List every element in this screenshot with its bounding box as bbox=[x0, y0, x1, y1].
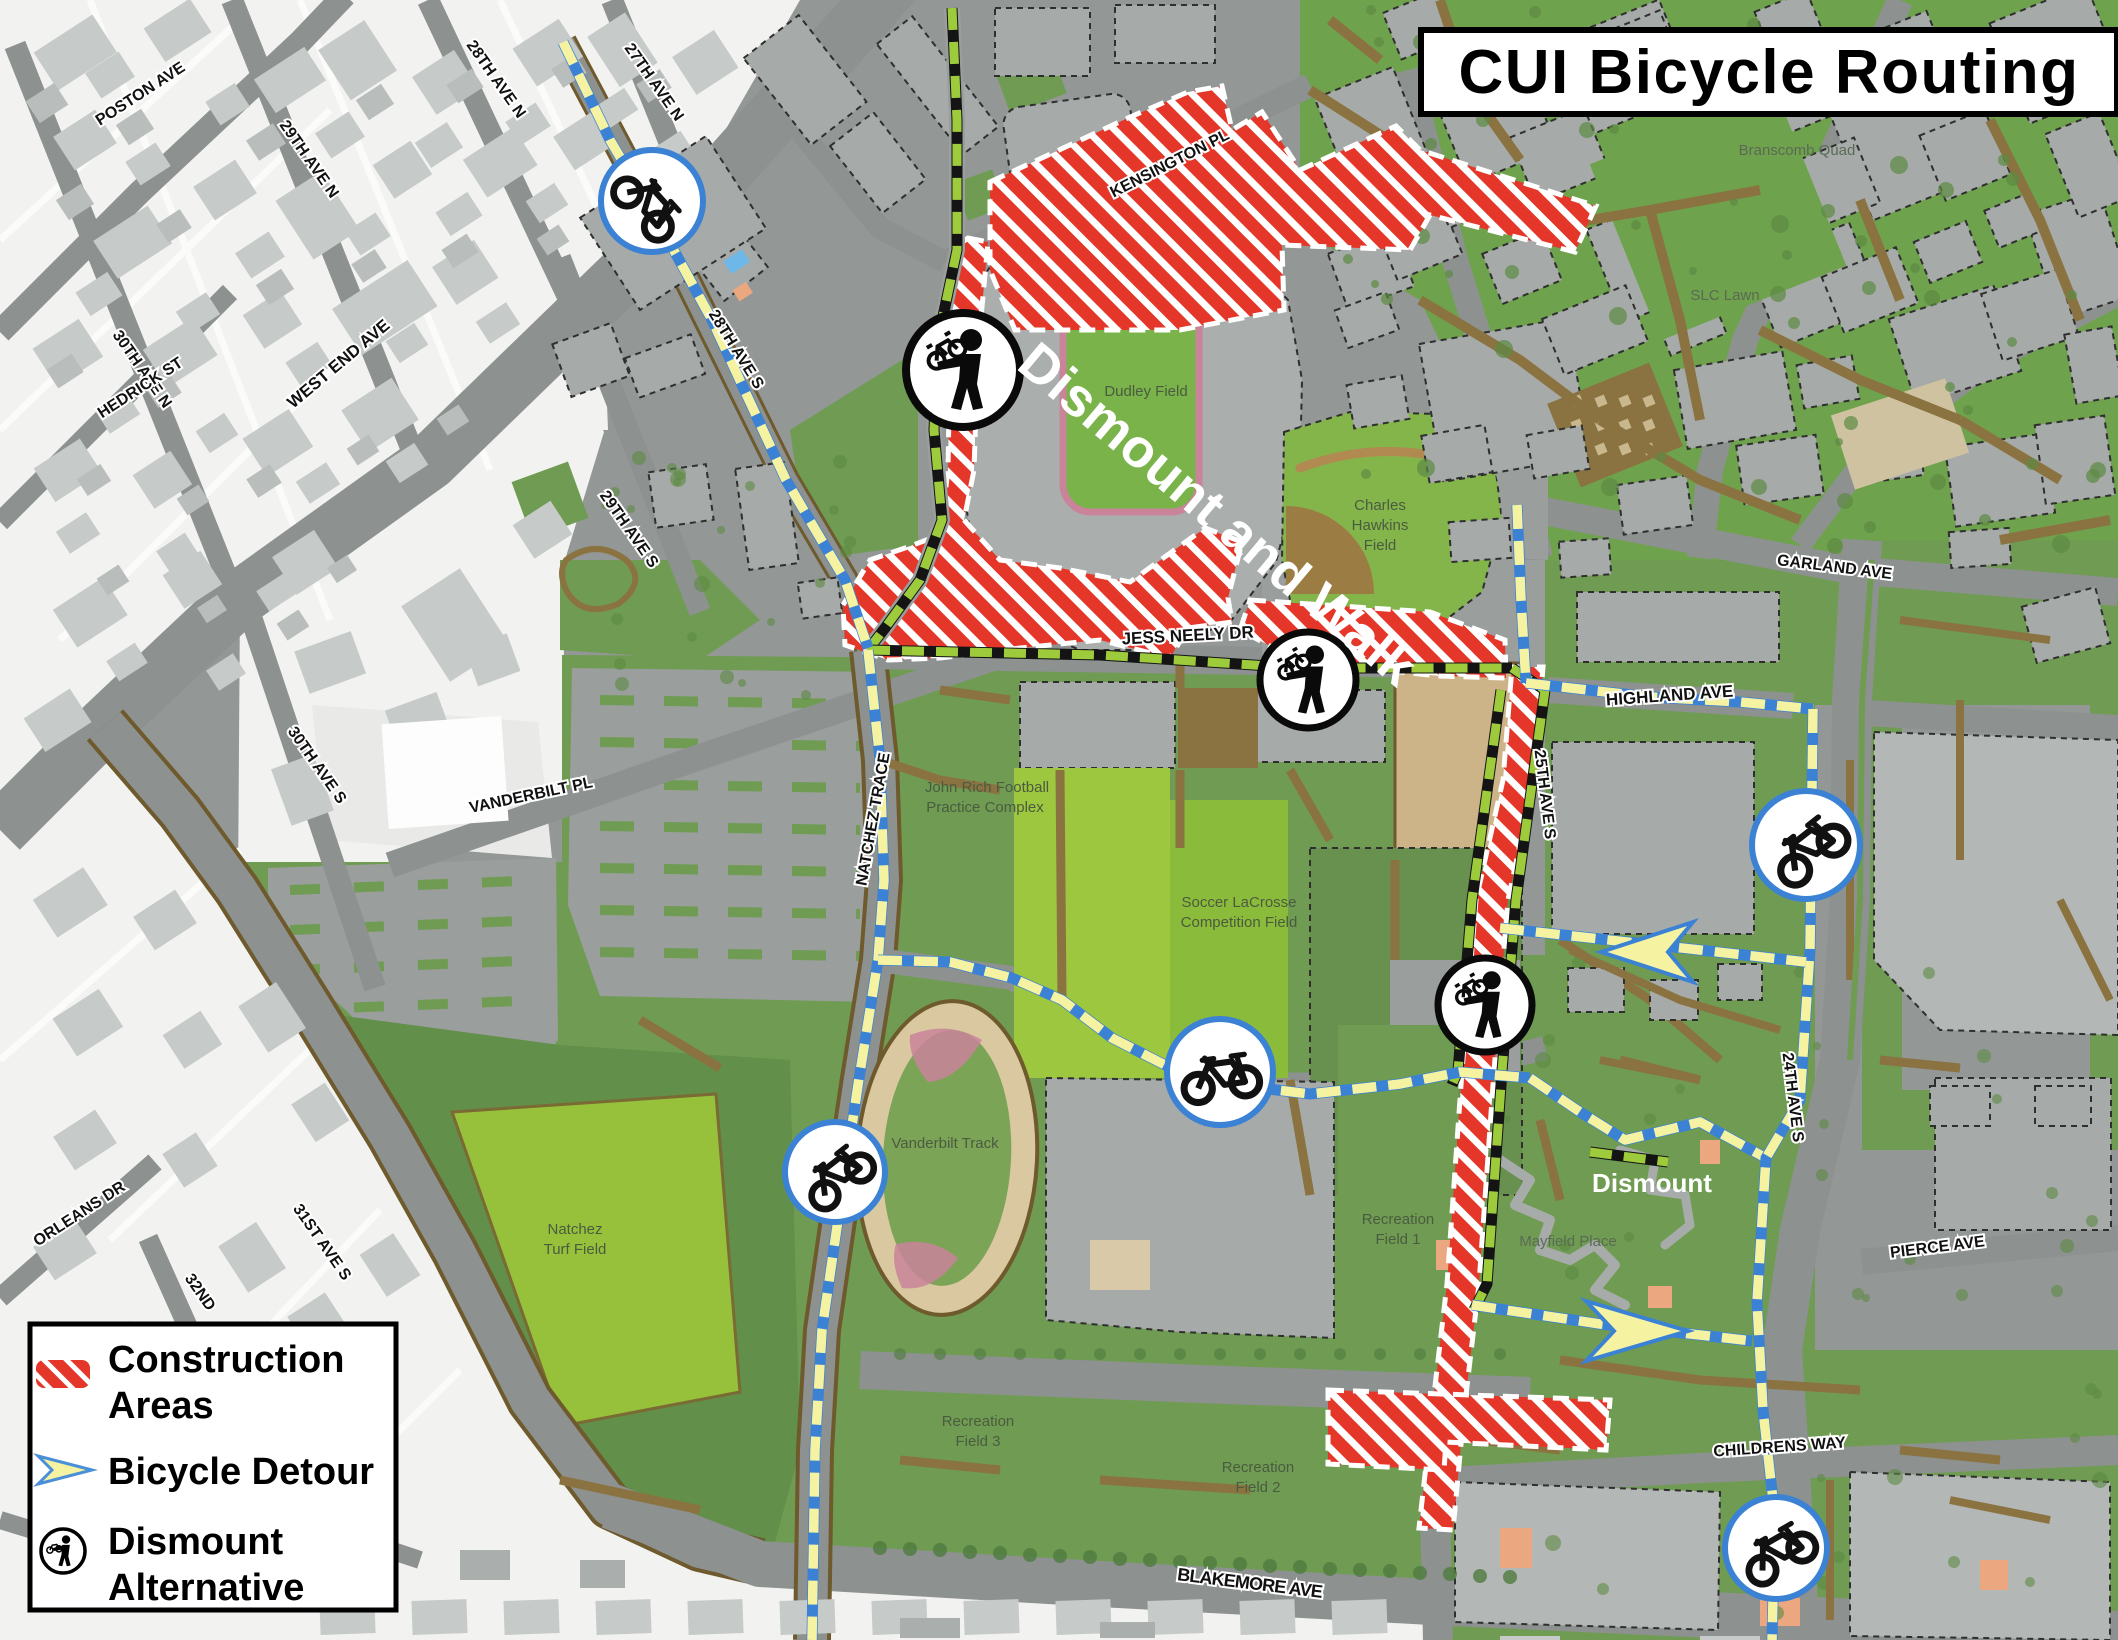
svg-text:SLC Lawn: SLC Lawn bbox=[1690, 287, 1759, 304]
svg-text:Vanderbilt Track: Vanderbilt Track bbox=[891, 1135, 999, 1152]
svg-text:Hawkins: Hawkins bbox=[1352, 517, 1409, 534]
svg-text:Dismount: Dismount bbox=[1592, 1168, 1712, 1198]
svg-text:Construction: Construction bbox=[108, 1339, 344, 1381]
svg-text:Practice Complex: Practice Complex bbox=[926, 799, 1044, 816]
svg-text:Field 3: Field 3 bbox=[955, 1433, 1000, 1450]
svg-text:Field 2: Field 2 bbox=[1235, 1479, 1280, 1496]
svg-text:Mayfield Place: Mayfield Place bbox=[1519, 1233, 1617, 1250]
svg-text:Recreation: Recreation bbox=[1362, 1211, 1435, 1228]
svg-text:Recreation: Recreation bbox=[1222, 1459, 1295, 1476]
svg-text:Bicycle Detour: Bicycle Detour bbox=[108, 1451, 374, 1493]
svg-text:Soccer LaCrosse: Soccer LaCrosse bbox=[1181, 894, 1296, 911]
svg-text:CUI Bicycle Routing: CUI Bicycle Routing bbox=[1458, 38, 2079, 107]
svg-text:Alternative: Alternative bbox=[108, 1567, 304, 1609]
svg-text:John Rich Football: John Rich Football bbox=[925, 779, 1049, 796]
svg-text:Areas: Areas bbox=[108, 1385, 214, 1427]
svg-text:Field: Field bbox=[1364, 537, 1397, 554]
svg-text:Branscomb Quad: Branscomb Quad bbox=[1739, 142, 1856, 159]
svg-text:Dismount: Dismount bbox=[108, 1521, 284, 1563]
svg-text:Field 1: Field 1 bbox=[1375, 1231, 1420, 1248]
svg-text:Charles: Charles bbox=[1354, 497, 1406, 514]
svg-text:Competition Field: Competition Field bbox=[1181, 914, 1298, 931]
svg-text:Turf Field: Turf Field bbox=[544, 1241, 607, 1258]
svg-text:Natchez: Natchez bbox=[547, 1221, 602, 1238]
svg-text:Recreation: Recreation bbox=[942, 1413, 1015, 1430]
